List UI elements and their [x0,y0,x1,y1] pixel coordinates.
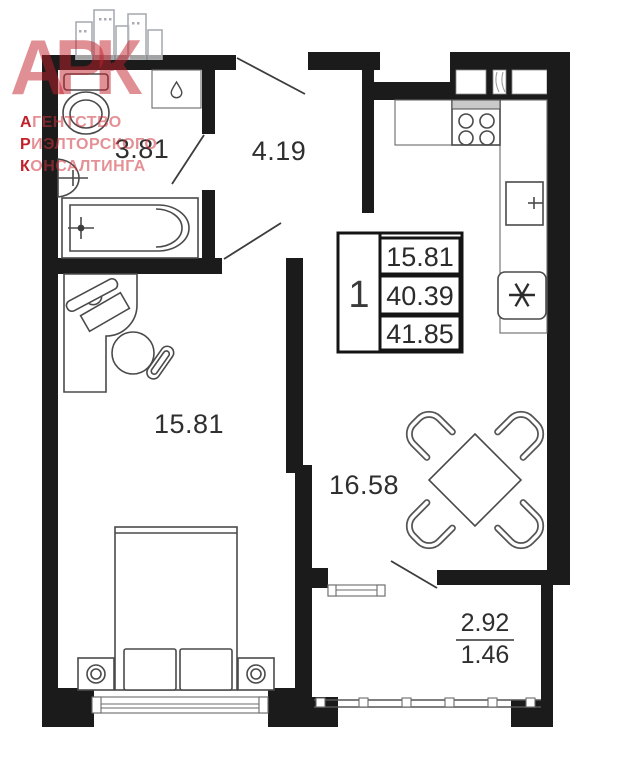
bed-icon [115,527,237,690]
bathroom-bottom-wall [42,258,222,274]
balcony-railing-icon [314,698,541,707]
kitchen-top-wall [374,82,452,100]
vent-shaft-icon [456,70,486,94]
bedroom-door-swing-icon [224,223,281,259]
dining-set [404,409,547,552]
bedroom-window-icon [92,697,268,713]
bedroom-area-label: 15.81 [154,409,224,439]
left-wall [42,55,58,727]
bath-faucet-icon [78,225,85,232]
hallway-area-label: 4.19 [252,136,307,166]
bathroom-area-label: 3.81 [115,134,170,164]
bathroom-right-wall-lower [202,190,215,260]
right-wall [547,52,570,585]
stamp-room-count: 1 [348,274,369,316]
nightstand-icon [238,658,274,690]
dining-chair-icon [498,503,547,552]
toilet-icon [63,74,109,134]
stamp-total-area: 41.85 [386,319,454,349]
balcony-left-wall [296,568,312,708]
balcony-area-reduced: 1.46 [461,641,510,669]
top-wall-left [42,55,236,70]
dining-chair-icon [404,409,453,458]
stove-icon [452,100,500,145]
floor-plan-drawing: 1 15.81 40.39 41.85 3.81 4.19 15.81 16.5… [0,0,625,759]
bathroom-door-swing-icon [172,135,204,184]
bedroom-bottom-wall-right [268,688,312,727]
bathroom-furniture [58,70,201,258]
bedroom-bottom-wall-left [42,688,94,727]
kitchen-living-area-label: 16.58 [329,470,399,500]
nightstand-icon [78,658,114,690]
kitchen-sink-icon [506,182,543,225]
balcony-right-wall [541,585,553,707]
floor-plan-page: 1 15.81 40.39 41.85 3.81 4.19 15.81 16.5… [0,0,625,759]
washbasin-icon [58,159,88,197]
bathroom-right-wall-upper [202,70,215,134]
office-chair-icon [112,332,176,381]
balcony-door-jamb [303,568,328,588]
top-wall-right [308,52,380,70]
bathtub-icon [62,198,198,258]
balcony-door-swing-icon [391,561,437,588]
stamp-living-area: 15.81 [386,242,454,272]
dining-table-icon [429,434,521,526]
bedroom-furniture [64,274,274,690]
living-bottom-wall [437,570,570,585]
vent-shaft-icon [512,70,547,94]
balcony-area-full: 2.92 [461,609,510,637]
balcony-area-label: 2.92 1.46 [456,609,514,669]
pillow-icon [124,649,176,690]
balcony-window-icon [328,585,385,596]
dining-chair-icon [498,409,547,458]
stamp-apartment-area: 40.39 [386,281,454,311]
pillow-icon [180,649,232,690]
refrigerator-icon [498,272,546,319]
entrance-door-swing-icon [237,58,305,94]
washing-machine-icon [152,70,201,108]
area-stamp: 1 15.81 40.39 41.85 [338,233,462,352]
hall-kitchen-divider-wall [362,70,374,213]
bedroom-living-divider-upper [286,258,303,473]
dining-chair-icon [404,503,453,552]
